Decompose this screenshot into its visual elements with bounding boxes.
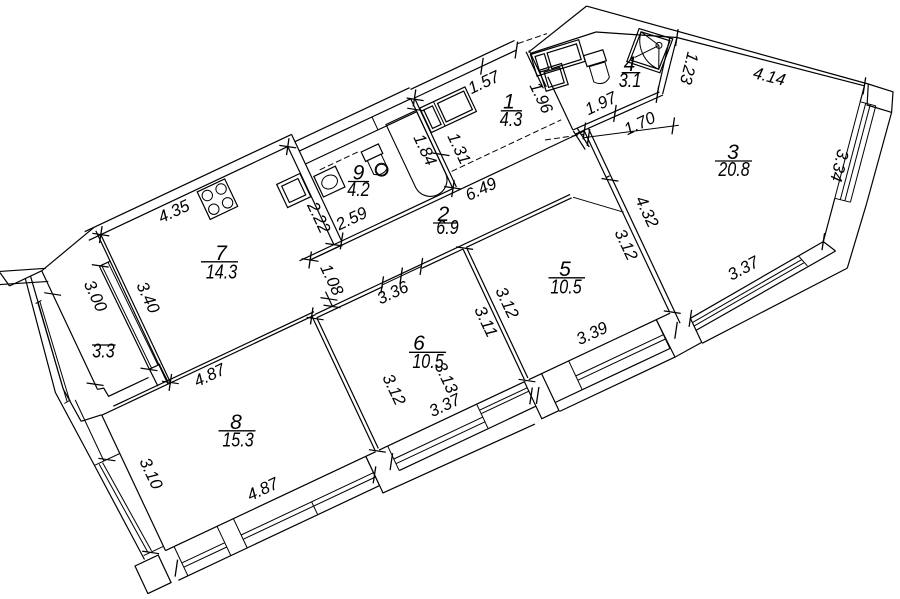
svg-text:3.1: 3.1	[619, 70, 641, 92]
svg-text:3.3: 3.3	[92, 341, 114, 363]
svg-text:4.2: 4.2	[347, 179, 369, 201]
svg-text:14.3: 14.3	[206, 262, 237, 284]
svg-text:10.5: 10.5	[412, 351, 444, 373]
svg-text:20.8: 20.8	[718, 159, 750, 181]
svg-text:4.3: 4.3	[500, 109, 522, 131]
svg-text:15.3: 15.3	[222, 430, 253, 452]
svg-text:10.5: 10.5	[550, 277, 582, 299]
svg-text:6.9: 6.9	[436, 217, 458, 239]
